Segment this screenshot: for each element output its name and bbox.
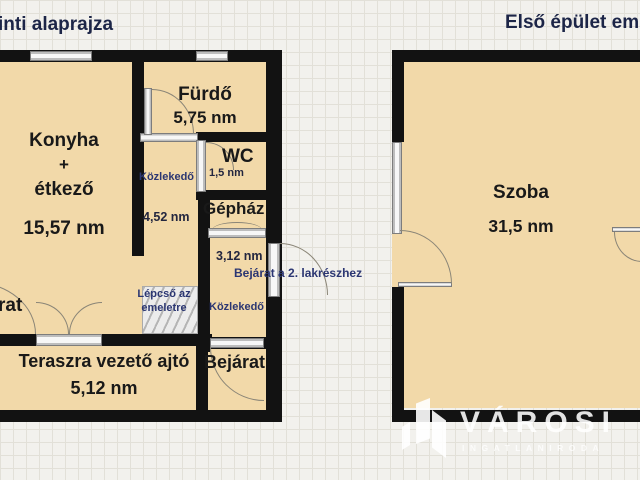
room-kozlekedo-upper-area: 4,52 nm xyxy=(143,210,190,224)
room-gephaz-name: Gépház xyxy=(203,199,264,219)
wall xyxy=(266,50,282,422)
window xyxy=(196,51,228,61)
left-plan-title: inti alaprajza xyxy=(0,14,113,36)
wc-door xyxy=(196,140,206,192)
stairs-label: Lépcső az emeletre xyxy=(130,287,198,315)
room-terasz: Teraszra vezető ajtó 5,12 nm xyxy=(0,349,208,400)
window xyxy=(30,51,92,61)
annotation-bejarat2: Bejárat a 2. lakrészhez xyxy=(234,266,362,280)
room-terasz-name: Teraszra vezető ajtó xyxy=(0,349,208,373)
room-kozlekedo-lower-area: 3,12 nm xyxy=(216,249,263,263)
room-terasz-area: 5,12 nm xyxy=(0,376,208,400)
room-wc-name: WC xyxy=(222,146,254,168)
room-konyha-name2: étkező xyxy=(4,177,124,202)
terasz-double-door xyxy=(36,334,102,346)
room-konyha-name: Konyha xyxy=(4,128,124,153)
wall xyxy=(392,50,640,62)
room-bejarat-name: Bejárat xyxy=(204,352,265,373)
room-szoba: Szoba 31,5 nm xyxy=(470,180,572,238)
room-kozlekedo-upper-name: Közlekedő xyxy=(139,171,194,183)
room-szoba-name: Szoba xyxy=(470,180,572,206)
floorplan-canvas: inti alaprajza Első épület em Konyha + é… xyxy=(0,0,640,480)
cut-room-label: rat xyxy=(0,295,22,317)
right-plan-title: Első épület em xyxy=(505,12,639,34)
wall xyxy=(392,50,404,142)
wall xyxy=(0,334,212,346)
room-furdo-area: 5,75 nm xyxy=(150,107,260,129)
varosi-logo-icon xyxy=(402,422,410,450)
wall xyxy=(132,60,144,256)
room-furdo-name: Fürdő xyxy=(150,83,260,107)
room-furdo: Fürdő 5,75 nm xyxy=(150,83,260,129)
room-wc-area: 1,5 nm xyxy=(209,167,244,179)
stairs-label-line2: emeletre xyxy=(130,301,198,315)
room-konyha-plus: + xyxy=(4,153,124,177)
varosi-logo-icon xyxy=(432,410,446,458)
room-konyha-area: 15,57 nm xyxy=(4,216,124,241)
stairs-label-line1: Lépcső az xyxy=(130,287,198,301)
varosi-logo-icon xyxy=(416,398,430,444)
watermark-brand: VÁROSI xyxy=(460,406,617,440)
room-konyha: Konyha + étkező 15,57 nm xyxy=(4,128,124,241)
szoba-window xyxy=(392,142,402,234)
watermark-subtext: INGATLANIRODA xyxy=(462,443,604,453)
watermark: VÁROSI INGATLANIRODA xyxy=(398,394,640,466)
wall xyxy=(196,132,266,142)
room-kozlekedo-lower-name: Közlekedő xyxy=(209,301,264,313)
room-szoba-area: 31,5 nm xyxy=(470,214,572,238)
wall xyxy=(0,410,282,422)
